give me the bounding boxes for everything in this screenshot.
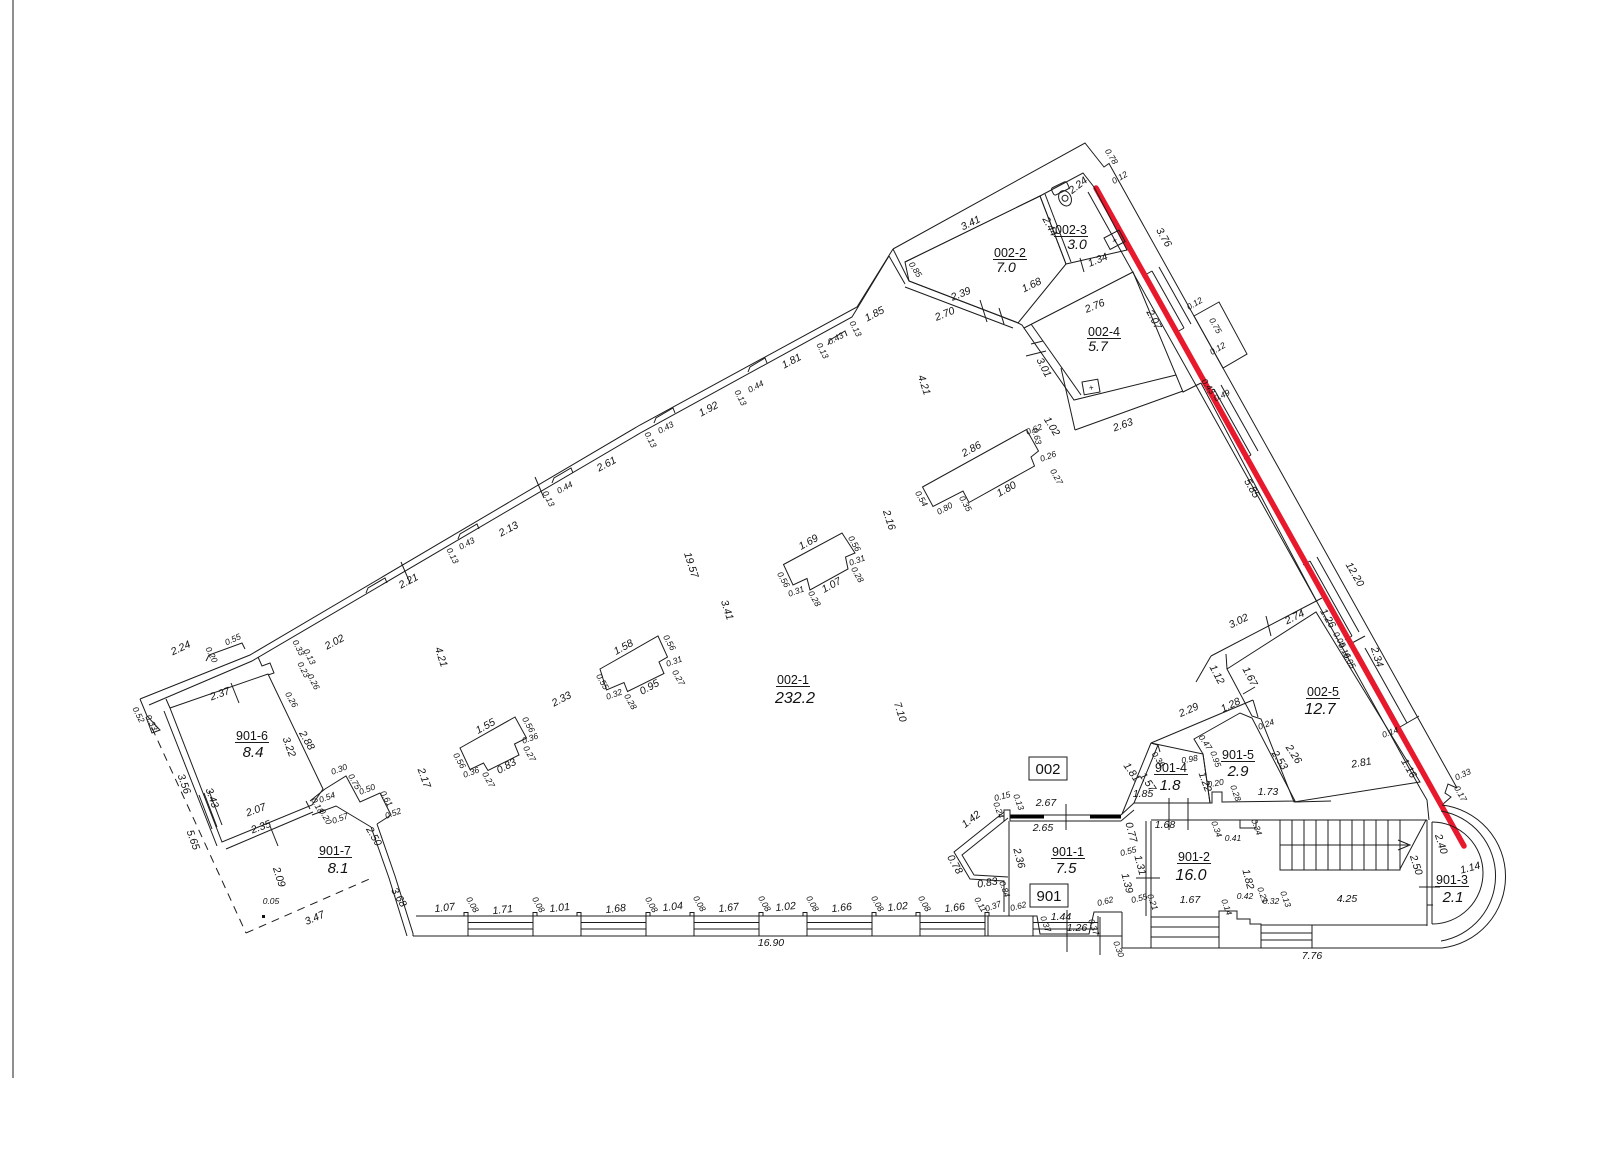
svg-text:002-1: 002-1 [777,673,809,687]
svg-text:1.67: 1.67 [1180,894,1202,906]
svg-text:1.8: 1.8 [1160,777,1182,794]
svg-text:901-3: 901-3 [1436,873,1468,887]
svg-text:901: 901 [1036,888,1061,905]
svg-text:3.0: 3.0 [1067,236,1087,252]
svg-text:8.1: 8.1 [328,860,349,877]
svg-text:1.68: 1.68 [605,902,627,916]
svg-text:7.5: 7.5 [1056,860,1078,877]
svg-text:901-5: 901-5 [1222,748,1254,762]
svg-text:0.42: 0.42 [1237,891,1254,901]
svg-text:002-5: 002-5 [1307,685,1339,699]
svg-text:901-7: 901-7 [319,844,351,858]
svg-text:1.26: 1.26 [1067,922,1088,934]
svg-text:2.67: 2.67 [1035,797,1058,809]
svg-text:1.04: 1.04 [662,900,684,914]
svg-text:002-2: 002-2 [994,246,1026,260]
svg-text:232.2: 232.2 [774,690,815,707]
svg-text:7.76: 7.76 [1302,950,1323,962]
svg-text:2.1: 2.1 [1442,889,1464,906]
svg-text:1.07: 1.07 [434,901,457,915]
svg-text:002: 002 [1035,761,1060,778]
svg-text:4.25: 4.25 [1337,893,1358,905]
svg-text:901-4: 901-4 [1155,761,1187,775]
svg-text:1.68: 1.68 [1155,819,1176,831]
svg-text:16.0: 16.0 [1175,867,1206,884]
svg-text:901-6: 901-6 [236,729,268,743]
svg-text:1.02: 1.02 [887,900,909,914]
svg-text:5.7: 5.7 [1088,338,1109,354]
svg-text:16.90: 16.90 [758,937,784,949]
svg-text:1.02: 1.02 [775,900,797,914]
svg-text:002-3: 002-3 [1055,223,1087,237]
svg-text:0.41: 0.41 [1225,833,1242,843]
svg-text:1.71: 1.71 [492,903,514,917]
svg-text:901-1: 901-1 [1052,845,1084,859]
svg-text:1.67: 1.67 [718,901,741,915]
svg-text:1.66: 1.66 [831,901,853,915]
svg-text:12.7: 12.7 [1304,701,1336,718]
svg-text:1.73: 1.73 [1258,786,1279,798]
svg-text:0.05: 0.05 [263,896,280,906]
svg-text:0.32: 0.32 [1263,896,1280,906]
svg-text:7.0: 7.0 [996,259,1016,275]
svg-text:8.4: 8.4 [243,744,264,761]
svg-text:1.01: 1.01 [549,901,571,915]
svg-text:1.66: 1.66 [944,901,966,915]
svg-text:2.9: 2.9 [1227,763,1250,780]
svg-text:2.65: 2.65 [1032,822,1054,834]
svg-text:901-2: 901-2 [1178,850,1210,864]
svg-text:002-4: 002-4 [1088,325,1120,339]
